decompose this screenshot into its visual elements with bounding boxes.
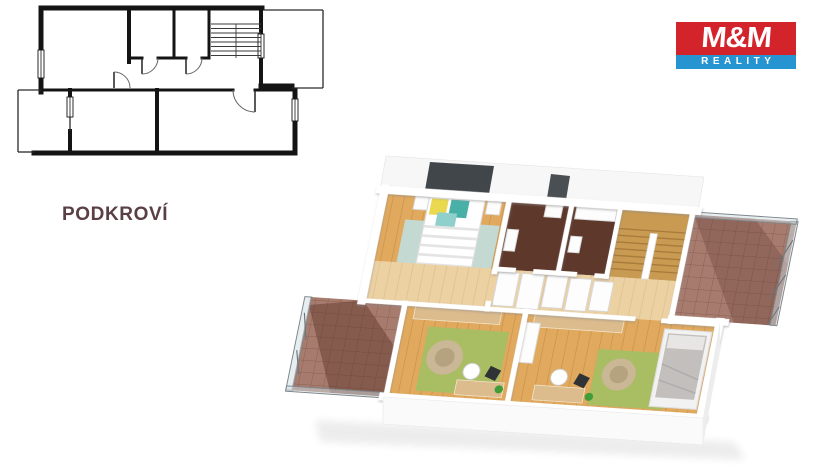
flyer-page: PODKROVÍ M&M REALITY [0,0,832,468]
roof-window-panel-2 [547,174,570,200]
desk-2 [532,385,585,403]
plan3d-floors [285,185,799,425]
kids-room-2 [507,311,717,417]
kids-room-1 [389,304,526,405]
floorplan-3d-render [0,0,832,468]
